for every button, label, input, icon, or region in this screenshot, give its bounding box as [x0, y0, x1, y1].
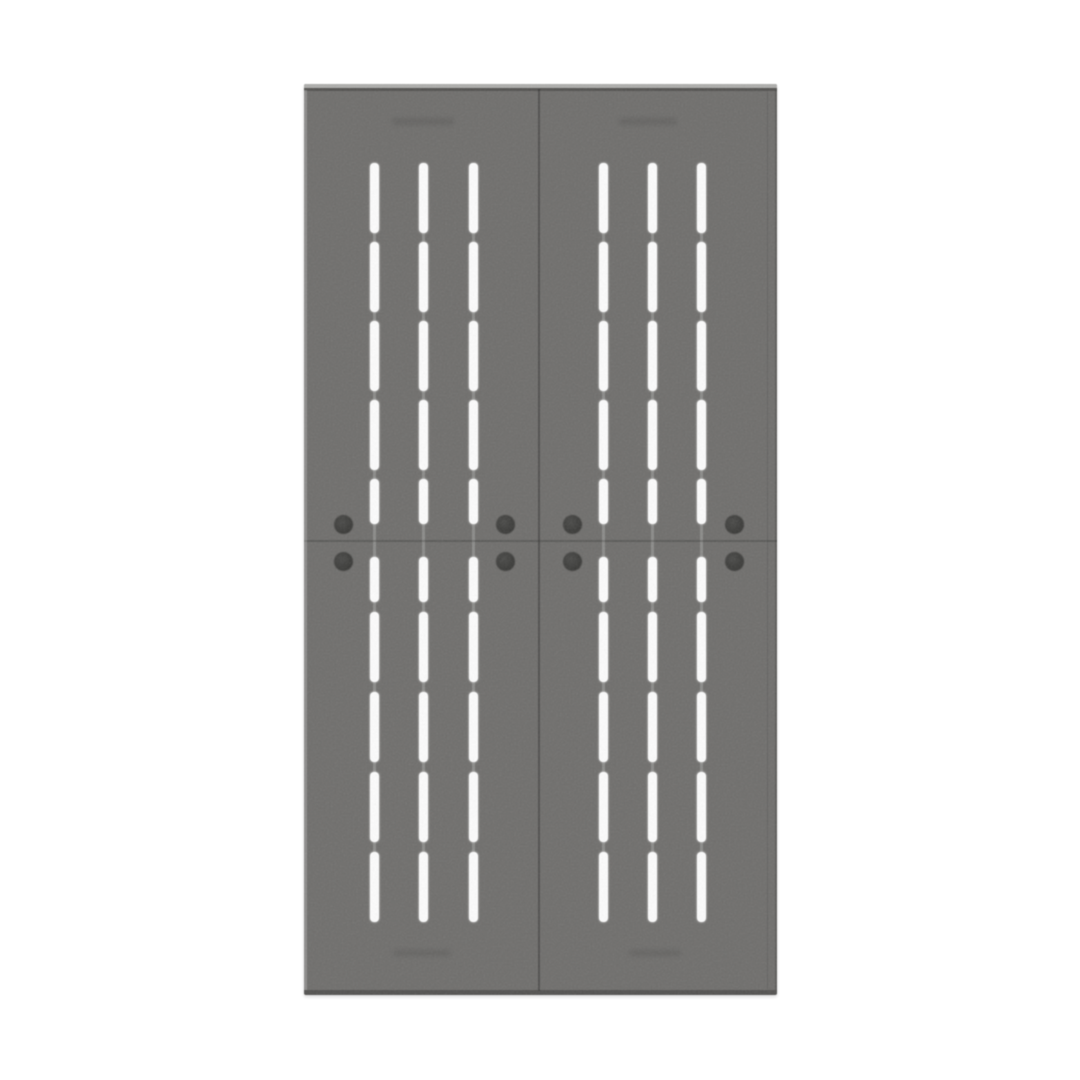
vent-slot — [599, 321, 608, 391]
vent-slot — [370, 692, 379, 762]
vent-slot — [469, 242, 478, 312]
vent-slot — [648, 852, 657, 922]
vent-slot — [599, 772, 608, 842]
vent-slot — [697, 692, 706, 762]
vent-slot — [697, 400, 706, 470]
vent-slot — [419, 479, 428, 524]
vent-slot — [648, 321, 657, 391]
bottom-edge-shadow — [304, 990, 777, 995]
vent-slot — [599, 557, 608, 602]
vent-slot — [599, 163, 608, 233]
knob — [334, 515, 353, 534]
vent-slot — [648, 163, 657, 233]
knob — [563, 515, 582, 534]
vent-slot — [370, 612, 379, 682]
knob — [725, 515, 744, 534]
knob — [725, 552, 744, 571]
vent-slot — [469, 692, 478, 762]
right-inner-panel-line — [767, 91, 768, 989]
vent-slot — [419, 400, 428, 470]
vent-slot — [599, 692, 608, 762]
vent-slot — [419, 242, 428, 312]
vent-slot — [697, 612, 706, 682]
vent-slot — [648, 612, 657, 682]
vent-slot — [469, 557, 478, 602]
cabinet — [304, 84, 777, 995]
vent-slot — [697, 321, 706, 391]
vent-slot — [648, 400, 657, 470]
vent-slot — [370, 772, 379, 842]
knob — [496, 515, 515, 534]
vent-slot — [697, 557, 706, 602]
vent-slot — [370, 163, 379, 233]
vent-slot — [697, 479, 706, 524]
vent-slot — [419, 557, 428, 602]
vent-slot — [370, 400, 379, 470]
vent-slot — [469, 479, 478, 524]
vent-slot — [469, 400, 478, 470]
vent-slot — [419, 772, 428, 842]
vent-slot — [697, 852, 706, 922]
vent-slot — [648, 242, 657, 312]
vent-slot — [469, 321, 478, 391]
vent-slot — [697, 772, 706, 842]
vent-slot — [648, 557, 657, 602]
knob — [334, 552, 353, 571]
embossed-mark — [619, 118, 677, 125]
top-edge-shadow — [304, 88, 777, 91]
vent-slot — [469, 852, 478, 922]
knob — [496, 552, 515, 571]
vent-slot — [599, 479, 608, 524]
vent-slot — [697, 242, 706, 312]
vent-slot — [469, 163, 478, 233]
vent-slot — [419, 692, 428, 762]
embossed-mark — [392, 118, 454, 125]
vent-slot — [599, 852, 608, 922]
vent-slot — [648, 479, 657, 524]
vent-slot — [370, 479, 379, 524]
vent-slot — [469, 612, 478, 682]
vent-slot — [419, 321, 428, 391]
mid-seam — [304, 540, 777, 542]
knob — [563, 552, 582, 571]
vent-slot — [648, 692, 657, 762]
right-edge-shadow — [775, 90, 777, 990]
vent-slot — [648, 772, 657, 842]
left-edge-highlight — [304, 90, 307, 990]
vent-slot — [370, 557, 379, 602]
vent-slot — [370, 852, 379, 922]
vent-slot — [370, 242, 379, 312]
vent-slot — [599, 242, 608, 312]
vent-slot — [697, 163, 706, 233]
vent-slot — [419, 612, 428, 682]
product-image — [0, 0, 1080, 1080]
embossed-mark — [629, 950, 681, 956]
vent-slot — [599, 400, 608, 470]
vent-slot — [469, 772, 478, 842]
embossed-mark — [393, 950, 451, 956]
vent-slot — [370, 321, 379, 391]
vent-slot — [419, 163, 428, 233]
vent-slot — [419, 852, 428, 922]
vent-slot — [599, 612, 608, 682]
